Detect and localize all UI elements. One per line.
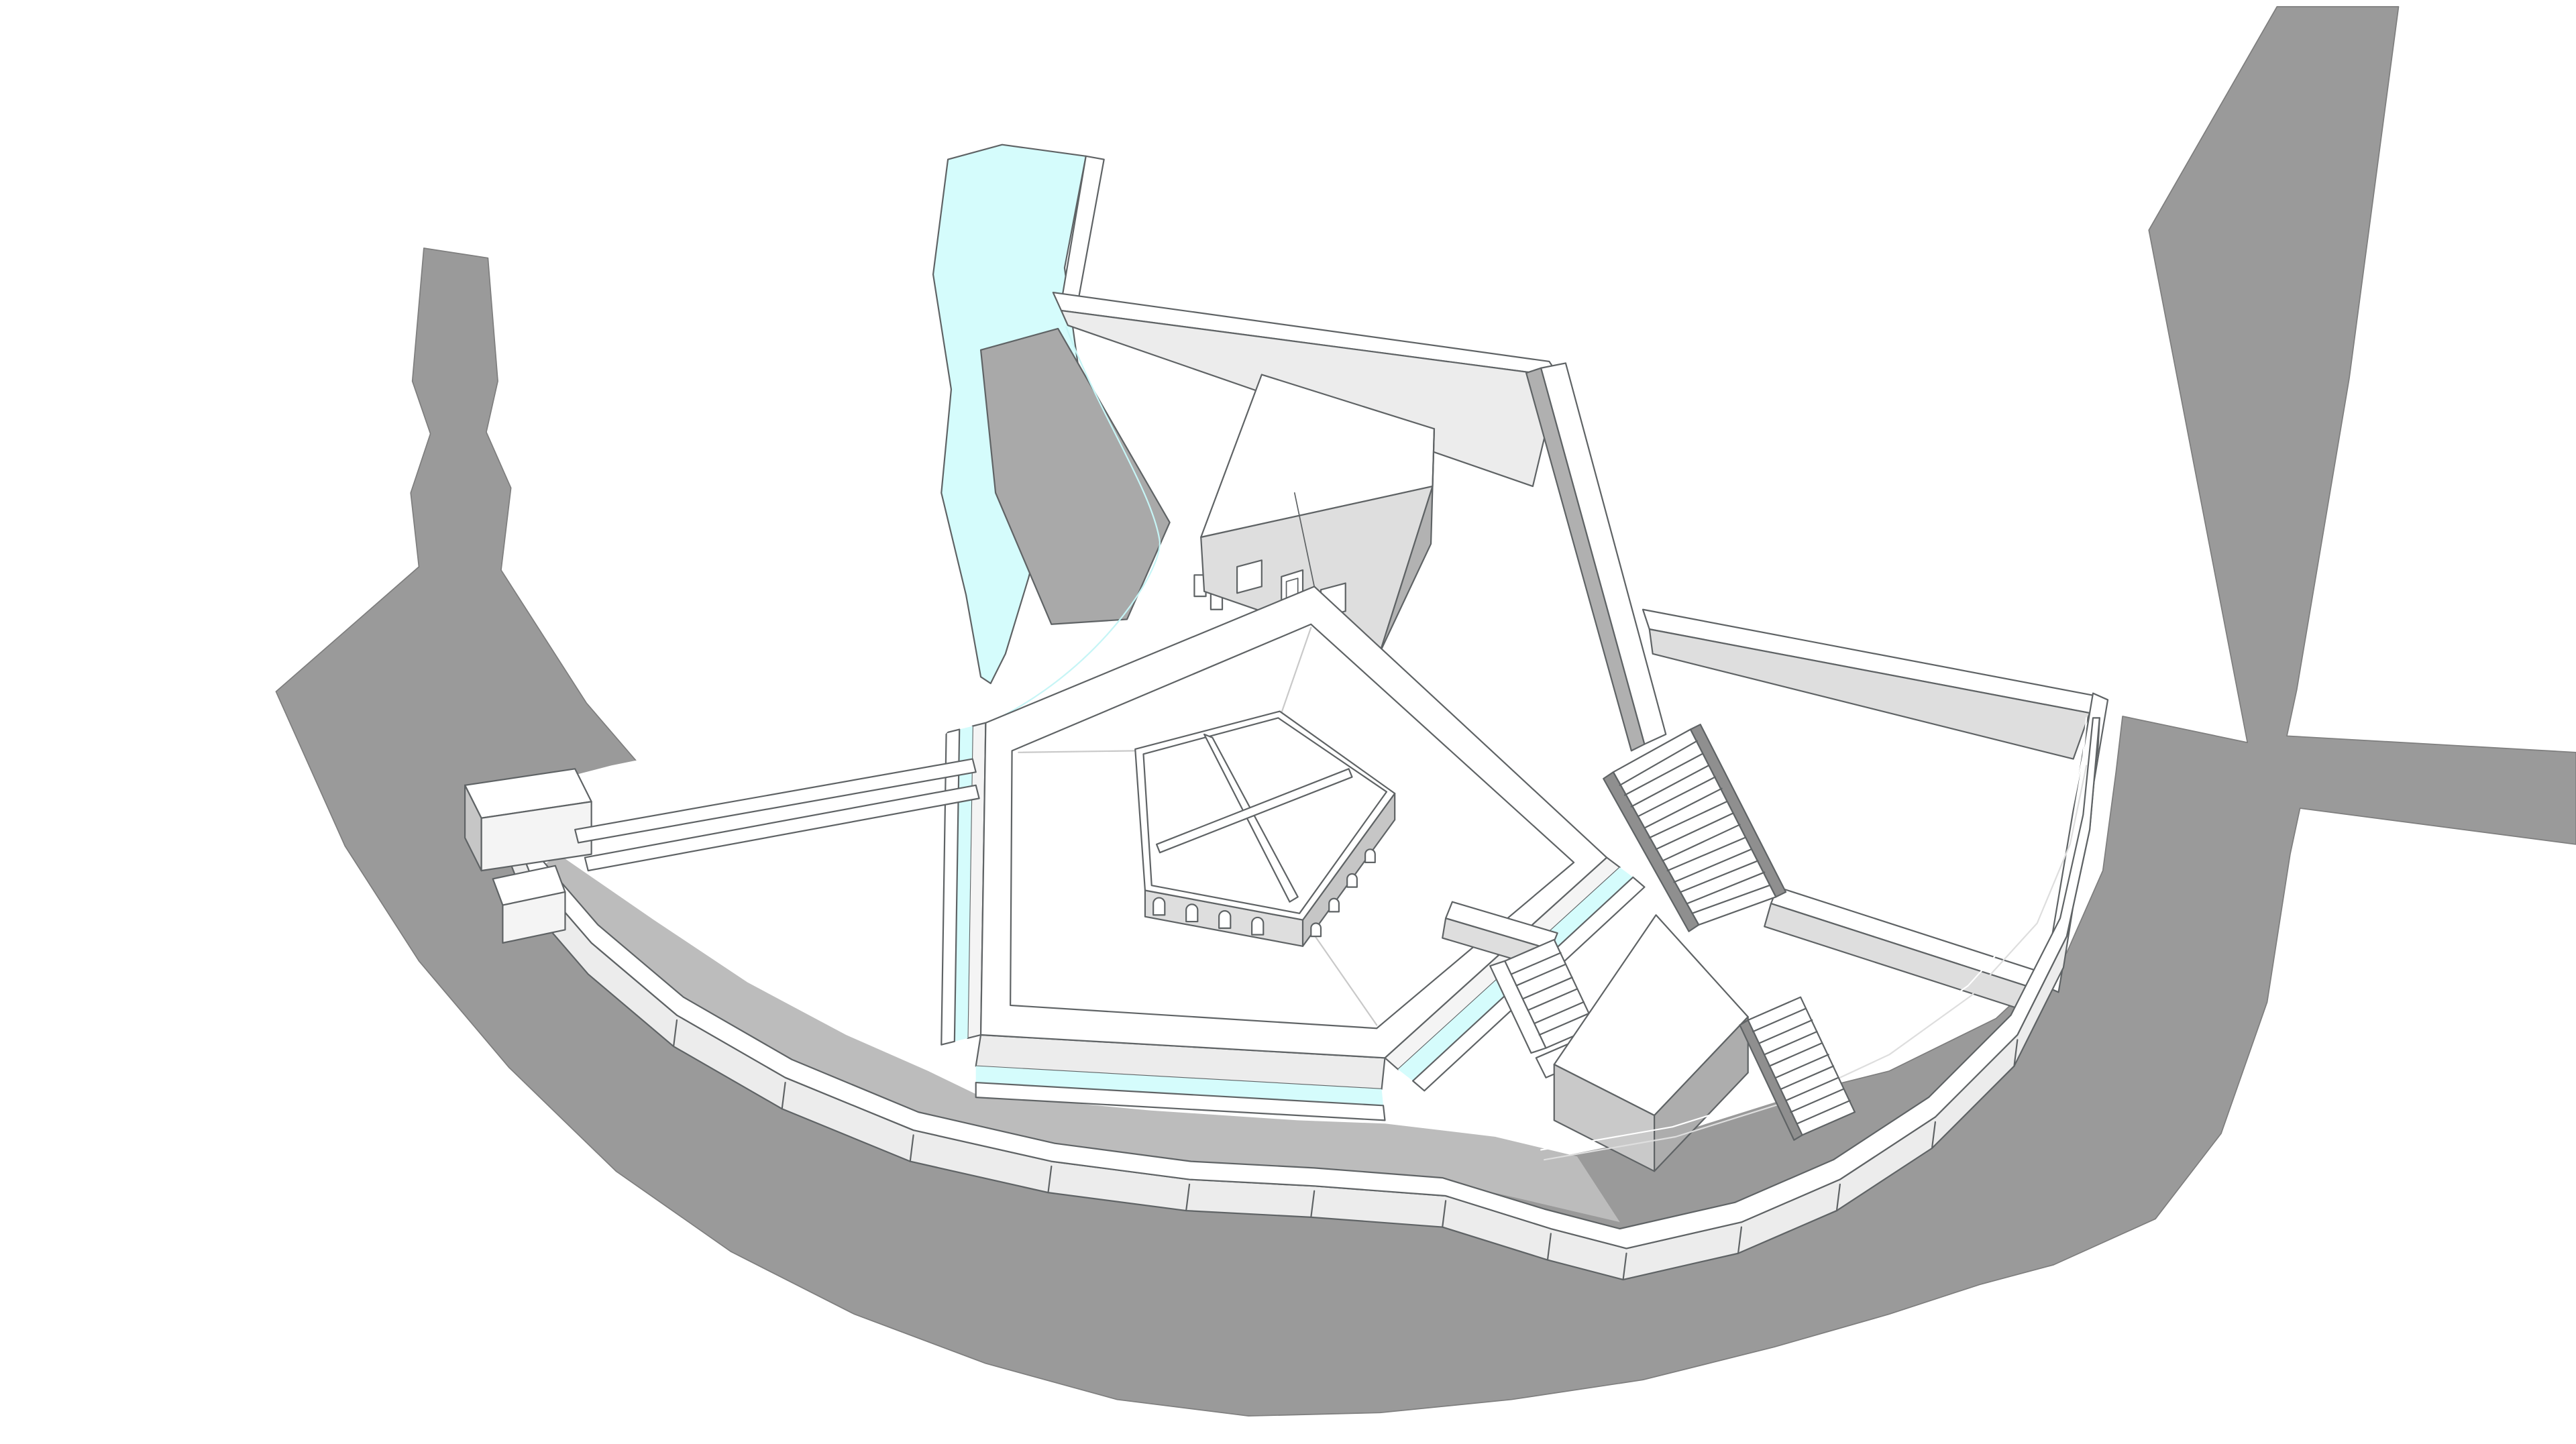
scene-root — [276, 7, 2576, 1416]
house-window-left — [1237, 560, 1262, 593]
site-model-canvas — [0, 0, 2576, 1444]
model-viewport — [0, 0, 2576, 1444]
